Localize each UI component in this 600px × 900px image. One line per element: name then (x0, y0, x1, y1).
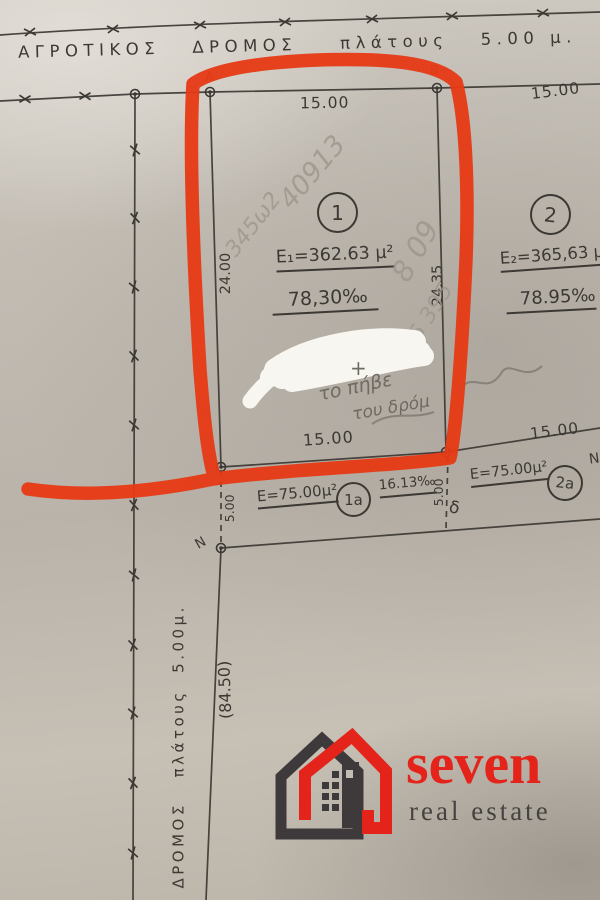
building-windows (322, 771, 339, 811)
red-marker-outline (28, 60, 467, 494)
logo: seven real estate (270, 722, 600, 862)
logo-tagline: real estate (409, 796, 551, 827)
plan-photo: ΑΓΡΟΤΙΚΟΣ ΔΡΟΜΟΣ πλάτους 5.00 μ. A B 15.… (0, 0, 600, 900)
logo-name: seven (406, 730, 541, 797)
